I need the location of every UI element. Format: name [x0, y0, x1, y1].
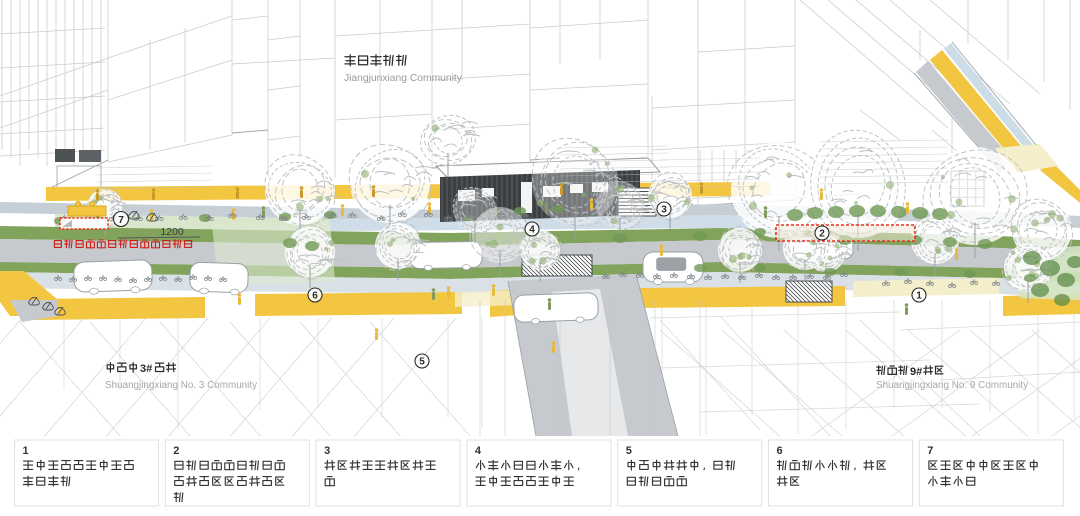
svg-text:4: 4 — [529, 225, 535, 236]
svg-text:2: 2 — [173, 445, 179, 457]
svg-text:Shuangjingxiang No. 9 Communit: Shuangjingxiang No. 9 Community — [876, 380, 1028, 391]
svg-text:7: 7 — [118, 214, 124, 226]
svg-text:Shuangjingxiang No. 3 Communit: Shuangjingxiang No. 3 Community — [105, 380, 257, 391]
svg-text:Jiangjunxiang Community: Jiangjunxiang Community — [344, 73, 463, 84]
svg-text:3: 3 — [324, 445, 330, 457]
svg-text:3: 3 — [661, 205, 667, 216]
svg-text:4: 4 — [475, 445, 482, 457]
svg-text:1200: 1200 — [160, 226, 184, 238]
svg-text:6: 6 — [312, 291, 318, 302]
svg-text:2: 2 — [819, 229, 825, 240]
svg-text:1: 1 — [23, 445, 29, 457]
svg-text:6: 6 — [777, 445, 783, 457]
svg-text:3#: 3# — [140, 363, 152, 375]
svg-text:5: 5 — [419, 357, 425, 368]
svg-text:5: 5 — [626, 445, 632, 457]
svg-text:7: 7 — [927, 445, 933, 457]
svg-text:1: 1 — [916, 291, 922, 302]
svg-text:9#: 9# — [910, 366, 922, 378]
